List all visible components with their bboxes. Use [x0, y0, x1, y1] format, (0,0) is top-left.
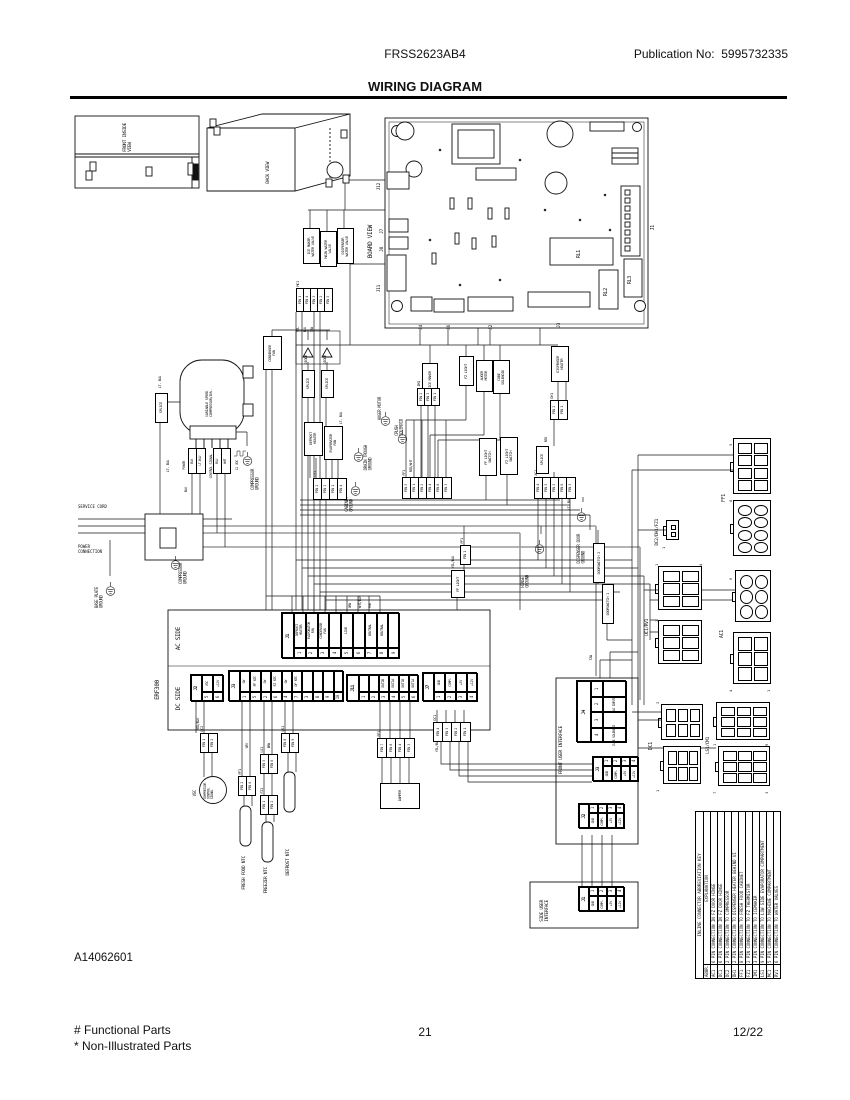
connector-pin-cavity — [663, 583, 680, 594]
key-explanation: 2 PIN CONNECTION TO DISPENSER HEATER BEH… — [732, 813, 738, 964]
pin-box: PIN 1 — [460, 722, 471, 742]
cell-number: 3 — [595, 719, 600, 721]
connector-pin-cavity — [682, 596, 699, 607]
connector-pin-cavity — [738, 637, 752, 651]
connector-name-cell: J4 — [577, 681, 591, 743]
table-cell: 10 — [334, 692, 344, 702]
table-cell: 1 — [240, 692, 250, 702]
connector-pin-cavity — [666, 724, 676, 737]
diagram-vlabel: BLU — [304, 327, 308, 332]
connector-pin-cavity — [737, 728, 751, 737]
component-label: DOORSWITCH 1 — [606, 593, 610, 615]
cell-label: GND — [606, 771, 610, 776]
pin-strip-header: MC1 — [296, 281, 300, 287]
table-cell: 7 — [292, 692, 302, 702]
table-cell — [353, 613, 365, 648]
component-box: DISPENSERHEATER — [551, 346, 569, 382]
pin-label: PIN 3 — [313, 296, 317, 304]
connector-pin-cavity — [663, 637, 680, 648]
connector-pin-cavity — [678, 724, 688, 737]
table-cell: 5 — [399, 692, 409, 702]
pin-strip-header: FF1 — [402, 470, 406, 476]
connector-pin-cavity — [723, 773, 737, 783]
table-cell: +12V — [616, 813, 625, 829]
connector-pin-cavity — [738, 517, 752, 528]
connector-name-cell: J1 — [282, 613, 294, 659]
pin-strip-header: LS1 — [260, 747, 264, 753]
table-cell: 4 — [591, 728, 603, 744]
pin-box: PIN 1 — [558, 400, 568, 420]
pin-label: PIN 1 — [263, 801, 267, 809]
table-cell: 1 — [589, 887, 598, 896]
pin-label: PIN 4 — [437, 728, 441, 736]
diagram-vlabel: FRONT INSIDEVIEW — [123, 123, 133, 152]
connector-pin-cavity — [754, 517, 768, 528]
connector-table: J3GND1COMM.2+5V3+12V4 — [592, 756, 638, 781]
diagram-vlabel: RED — [545, 437, 549, 442]
cell-label: DEFROSTHEATER — [296, 624, 304, 636]
diagram-hlabel: SERVICE CORD — [78, 505, 107, 510]
cell-label: AC INPUT — [613, 698, 617, 711]
diagram-vlabel: 3 — [765, 792, 769, 794]
connector-table: J412AC INPUT34CUBE SOLENOID — [576, 680, 626, 742]
table-cell: 2 — [445, 692, 456, 702]
connector-pin-cavity — [754, 468, 768, 479]
pin-box: PIN 3 — [442, 477, 452, 499]
pin-box: PIN 9 — [289, 733, 299, 753]
component-label: SPLICE — [325, 378, 329, 389]
connector-pin-cavity — [740, 590, 753, 604]
component-label: SPLICE — [306, 378, 310, 389]
connector-pin-cavity — [682, 637, 699, 648]
connector-pin-cavity — [671, 532, 676, 537]
cell-label: FF NTC — [254, 676, 258, 686]
cell-label: OUT1B — [402, 679, 406, 688]
key-table: INLINE CONNECTOR ABBREVIATION KEYABBR.EX… — [695, 811, 781, 979]
pin-label: PIN 4 — [306, 296, 310, 304]
pin-label: PIN 7 — [381, 744, 385, 752]
key-table-row: DH12 PIN CONNECTION TO DISPENSER HEATER … — [731, 812, 738, 978]
cell-number: 3 — [609, 890, 614, 892]
pin-label: PIN 6 — [249, 782, 253, 790]
table-cell: COMM. — [445, 673, 456, 692]
connector-pin-cavity — [663, 571, 680, 582]
connector-pin-cavity — [755, 605, 768, 619]
table-cell: COMM. — [598, 813, 607, 829]
connector-pin-cavity — [738, 667, 752, 681]
diagram-vlabel: DC2/DH1/FZ1 — [655, 519, 660, 546]
pin-label: PIN 3 — [324, 485, 328, 493]
connector-pin-cavity — [663, 650, 680, 661]
pin-label: PIN 1 — [561, 406, 565, 414]
connector-tab — [732, 592, 736, 602]
table-cell: 1 — [591, 681, 603, 697]
table-cell: OUT2B — [379, 675, 389, 692]
table-cell: 4 — [389, 692, 399, 702]
cell-number: 1 — [591, 890, 596, 892]
diagram-vlabel: COMPRESSORGROUND — [251, 469, 260, 490]
table-cell: 4 — [616, 804, 625, 813]
component-label: FZ LIGHTSWITCH — [505, 449, 513, 464]
revision-date: 12/22 — [733, 1025, 763, 1039]
cell-label: CUBE SOLENOID — [613, 725, 617, 746]
pin-label: PIN 2 — [271, 801, 275, 809]
diagram-vlabel: TAN — [311, 327, 315, 332]
component-box: DOORSWITCH 2 — [593, 543, 605, 583]
connector-pin-cavity — [753, 762, 767, 772]
connector-pin-cavity — [755, 575, 768, 589]
cell-number: 4 — [392, 696, 397, 698]
table-cell: +12V — [616, 896, 625, 912]
connector-pin-cavity — [738, 468, 752, 479]
pin-label: PIN 3 — [569, 484, 573, 492]
pin-label: PIN 5 — [405, 484, 409, 492]
diagram-vlabel: BASE PLATEGROUND — [95, 587, 104, 608]
connector-pin-cavity — [754, 542, 768, 553]
cell-number: 4 — [618, 890, 623, 892]
key-abbr: AC1 — [711, 964, 717, 978]
connector-tab — [713, 717, 717, 727]
ground-icon — [350, 482, 361, 501]
table-cell: 8 — [313, 692, 323, 702]
component-box: FZ LIGHT — [459, 356, 474, 386]
cell-label: EVAPORATORFAN — [308, 622, 316, 639]
manual-page: FRSS2623AB4 Publication No: 5995732335 W… — [0, 0, 850, 1100]
connector-name-cell: J3 — [229, 671, 240, 702]
component-label: FZ LIGHT — [464, 364, 468, 379]
key-table-row: FF18 PIN CONNECTION TO FRESH FOOD CABINE… — [738, 812, 745, 978]
pin-box: PIN 3 — [404, 738, 415, 758]
pin-label: PIN 3 — [408, 744, 412, 752]
connector-pin-cavity — [721, 728, 735, 737]
table-cell — [323, 671, 333, 692]
component-box: SPLICE — [321, 370, 334, 398]
diagram-vlabel: 1 — [767, 690, 771, 692]
diagram-vlabel: J11 — [377, 285, 382, 292]
component-box: DISPENSERWATER VALVE — [337, 228, 354, 264]
table-cell: +5V — [621, 766, 630, 782]
component-box: FF LIGHT — [451, 570, 465, 598]
pin-box: PIN 3 — [566, 477, 576, 499]
connector-pin-cavity — [682, 625, 699, 636]
connector-block — [663, 746, 701, 784]
pin-box: PIN 2 — [208, 733, 218, 753]
cell-label: NEUTRAL — [381, 624, 385, 636]
pin-label: PIN 1 — [464, 728, 468, 736]
ground-icon — [397, 430, 408, 449]
pin-label: PIN 2 — [211, 739, 215, 747]
cell-number: 5 — [345, 652, 350, 654]
cell-number: 5 — [253, 696, 258, 698]
key-explanation: 6 PIN CONNECTION IN FZ DOOR HINGE — [711, 813, 717, 964]
table-cell: 4 — [467, 692, 478, 702]
key-abbr: FZ1 — [746, 964, 752, 978]
connector-block — [733, 438, 771, 494]
cell-number: 9 — [326, 696, 331, 698]
pin-label: PIN 3 — [427, 393, 431, 401]
pin-strip-header: FZ1 — [260, 788, 264, 794]
connector-block — [718, 746, 770, 786]
diagram-vlabel: J8 — [380, 247, 385, 252]
pin-label: PIN 5 — [545, 484, 549, 492]
key-abbr: IM1 — [753, 964, 759, 978]
key-explanation: 2 PIN CONNECTION TO COMPRESSOR — [725, 813, 731, 964]
diagram-vlabel: RL1 — [577, 250, 583, 258]
pin-label: PIN 4 — [429, 484, 433, 492]
connector-pin-cavity — [738, 443, 752, 454]
component-box: CONDENSERFAN — [263, 336, 282, 370]
table-cell — [388, 613, 400, 648]
cell-number: 1 — [362, 696, 367, 698]
connector-tab — [730, 654, 734, 664]
connector-pin-cavity — [738, 542, 752, 553]
pin-label: BLU — [216, 459, 220, 464]
diagram-vlabel: BACK VIEW — [266, 162, 271, 184]
cell-number: 3 — [609, 807, 614, 809]
cell-label: OUT2B — [382, 679, 386, 688]
diagram-vlabel: WHT/BLK — [359, 596, 363, 608]
connector-block — [733, 500, 771, 556]
table-cell — [329, 613, 341, 648]
table-cell: 2 — [591, 697, 603, 713]
connector-pin-cavity — [753, 707, 767, 716]
table-cell: 3 — [621, 757, 630, 766]
diagram-vlabel: FRONT USER INTERFACE — [559, 726, 564, 774]
table-cell: 1 — [589, 804, 598, 813]
connector-pin-cavity — [738, 773, 752, 783]
connector-pin-cavity — [754, 480, 768, 491]
cell-number: 8 — [380, 652, 385, 654]
diagram-vlabel: UC1/RV1 — [645, 619, 650, 636]
pin-label: PIN 1 — [203, 739, 207, 747]
cell-number: 6 — [274, 696, 279, 698]
component-box: MAIN WATERVALVE — [320, 231, 337, 267]
diagram-vlabel: 4 — [729, 690, 733, 692]
cell-number: 1 — [437, 696, 442, 698]
key-table-header-cell: EXPLANATION — [704, 813, 710, 964]
connector-pin-cavity — [740, 605, 753, 619]
key-table-row: MC15 PIN CONNECTION TO MACHINE COMPARTME… — [766, 812, 773, 978]
pin-label: PIN 1 — [434, 393, 438, 401]
connector-name-cell: J7 — [423, 673, 434, 702]
diagram-vlabel: 2 — [656, 702, 660, 704]
cell-label: SW — [264, 680, 268, 683]
diagram-vlabel: 7 — [713, 792, 717, 794]
connector-block — [658, 566, 702, 610]
key-explanation: 9 PIN CONNECTION TO LOW SIDE EVAPORATOR … — [760, 813, 766, 964]
connector-pin-cavity — [721, 707, 735, 716]
connector-pin-cavity — [682, 583, 699, 594]
diagram-vlabel: SIDE USERINTERFACE — [540, 900, 550, 922]
key-table-header-row: ABBR.EXPLANATION — [703, 812, 710, 978]
connector-pin-cavity — [754, 443, 768, 454]
table-cell: 7 — [365, 648, 377, 659]
table-cell: 4 — [329, 648, 341, 659]
cell-number: 8 — [316, 696, 321, 698]
table-cell: FZ NTC — [271, 671, 281, 692]
diagram-vlabel: DISPENSER DOORGROUND — [577, 534, 586, 564]
diagram-vlabel: HINGEGROUND — [521, 575, 530, 588]
component-label: EVAPORATORFAN — [329, 434, 337, 453]
page-number: 21 — [0, 1025, 850, 1039]
cell-label: +5V — [624, 771, 628, 776]
pin-strip-header: FF1 — [238, 769, 242, 775]
connector-pin-cavity — [689, 767, 698, 781]
pin-label: PIN 4 — [537, 484, 541, 492]
pin-strip-header: FF1 — [377, 731, 381, 737]
cell-number: 1 — [605, 760, 610, 762]
connector-block — [733, 632, 771, 684]
component-label: DEFROSTHEATER — [309, 432, 317, 445]
connector-pin-cavity — [738, 762, 752, 772]
table-cell: GND — [603, 766, 612, 782]
table-cell: 3 — [591, 712, 603, 728]
pin-box: PIN 1 — [431, 388, 440, 406]
pin-label: PIN 2 — [553, 406, 557, 414]
key-table-row: IM13 PIN CONNECTION TO ICEMAKER — [752, 812, 759, 978]
pin-label: PIN 5 — [327, 296, 331, 304]
table-cell: AC INPUT — [603, 697, 627, 713]
component-label: CONDENSERFAN — [268, 345, 276, 362]
table-cell — [302, 671, 312, 692]
cell-label: OUT1A — [412, 679, 416, 688]
component-box: DAMPER — [380, 783, 420, 809]
connector-table: J7GND1COMM.2+5V3+12V4 — [422, 672, 477, 701]
pin-label: PIN 9 — [292, 739, 296, 747]
cell-label: +12V — [217, 680, 221, 687]
table-cell: 5 — [341, 648, 353, 659]
non-illustrated-parts-note: * Non-Illustrated Parts — [74, 1039, 191, 1053]
page-title: WIRING DIAGRAM — [0, 79, 850, 94]
diagram-vlabel: J6 — [447, 325, 452, 330]
cell-number: 4 — [333, 652, 338, 654]
connector-name-cell: J1 — [579, 887, 589, 912]
ground-icon — [380, 412, 391, 431]
cell-number: 2 — [264, 696, 269, 698]
table-cell: CONDENSERFAN — [318, 613, 330, 648]
cell-number: 4 — [470, 696, 475, 698]
cell-number: 9 — [392, 652, 397, 654]
connector-pin-cavity — [689, 751, 698, 765]
pin-label: PIN 3 — [445, 484, 449, 492]
key-abbr: FF1 — [739, 964, 745, 978]
table-cell: 2 — [369, 692, 379, 702]
diagram-vlabel: J4 — [419, 325, 424, 330]
cell-number: 3 — [321, 652, 326, 654]
key-explanation: 6 PIN CONNECTION TO WATER VALVES — [774, 813, 780, 964]
cell-label: +12V — [633, 771, 637, 778]
component-label: FF LIGHT — [456, 577, 460, 592]
pin-box: WHT — [221, 448, 231, 474]
diagram-vlabel: J7 — [380, 229, 385, 234]
cell-number: 2 — [614, 760, 619, 762]
table-cell: 2 — [306, 648, 318, 659]
title-rule — [70, 96, 787, 99]
cell-label: SW — [243, 680, 247, 683]
diagram-vlabel: POWER — [183, 461, 187, 470]
table-cell: +12V — [467, 673, 478, 692]
connector-pin-cavity — [678, 751, 687, 765]
cell-number: 4 — [618, 807, 623, 809]
pin-label: PIN 6 — [271, 760, 275, 768]
table-cell: 9 — [323, 692, 333, 702]
cell-number: 2 — [448, 696, 453, 698]
connector-pin-cavity — [671, 525, 676, 530]
connector-name-cell: J2 — [579, 804, 589, 829]
component-label: CUBESOLENOID — [497, 370, 505, 385]
connector-tab — [660, 761, 664, 771]
connector-tab — [663, 526, 667, 536]
cell-label: +5V — [610, 901, 614, 906]
connector-name: J7 — [426, 685, 431, 689]
diagram-vlabel: BRN — [268, 743, 272, 748]
table-cell: GND — [589, 813, 598, 829]
key-table-row: RV16 PIN CONNECTION TO WATER VALVES — [773, 812, 780, 978]
diagram-vlabel: RED/WHT — [410, 460, 414, 472]
table-cell: 1 — [359, 692, 369, 702]
cell-number: 6 — [216, 696, 221, 698]
connector-pin-cavity — [682, 571, 699, 582]
pin-label: LT.BLU — [199, 456, 203, 466]
table-cell: 3 — [607, 804, 616, 813]
connector-name: J1 — [286, 634, 291, 638]
diagram-vlabel: PNK — [369, 603, 373, 608]
component-label: FF LIGHTSWITCH — [484, 450, 492, 465]
key-abbr: MC1 — [767, 964, 773, 978]
connector-pin-cavity — [738, 455, 752, 466]
table-cell: 4 — [630, 757, 639, 766]
diagram-vlabel: AC SIDE — [176, 627, 183, 650]
diagram-vlabel: FREEZER NTC — [264, 867, 269, 894]
table-cell: 6 — [271, 692, 281, 702]
connector-block — [735, 570, 771, 622]
connector-pin-cavity — [690, 709, 700, 722]
key-table-title: INLINE CONNECTOR ABBREVIATION KEY — [696, 812, 703, 978]
diagram-vlabel: GRY — [246, 743, 250, 748]
connector-table: J1112OUT2B3OUT2A4OUT1B5OUT1A6 — [346, 674, 418, 701]
diagram-vlabel: YEL/BLU — [452, 556, 456, 568]
pin-label: PIN 2 — [553, 484, 557, 492]
table-cell — [313, 671, 323, 692]
table-cell: 4 — [282, 692, 292, 702]
component-label: ICE MAKER — [428, 371, 432, 388]
connector-name-cell: J3 — [593, 757, 603, 782]
cell-label: +5V — [460, 680, 464, 685]
connector-pin-cavity — [754, 505, 768, 516]
cell-label: OUT2A — [392, 679, 396, 688]
table-cell: +12V — [630, 766, 639, 782]
table-cell: DF NTC — [292, 671, 302, 692]
connector-name: J2 — [582, 814, 587, 818]
connector-pin-cavity — [755, 590, 768, 604]
component-box: CUBESOLENOID — [493, 360, 510, 394]
ground-icon — [105, 582, 116, 601]
table-cell: 6 — [353, 648, 365, 659]
cell-label: +5V — [610, 818, 614, 823]
cell-number: 2 — [309, 652, 314, 654]
component-label: ICE MAKERWATER VALVE — [307, 236, 315, 257]
cell-number: 4 — [595, 734, 600, 736]
diagram-vlabel: LT. BLU — [340, 412, 344, 424]
pin-label: PIN 1 — [413, 484, 417, 492]
diagram-vlabel: RL3 — [628, 276, 634, 284]
component-box: FF LIGHTSWITCH — [479, 438, 497, 476]
table-cell — [334, 671, 344, 692]
pin-label: PIN 2 — [316, 485, 320, 493]
cell-number: 7 — [295, 696, 300, 698]
pin-box: PIN 1 — [460, 545, 471, 565]
cell-label: GND — [592, 818, 596, 823]
